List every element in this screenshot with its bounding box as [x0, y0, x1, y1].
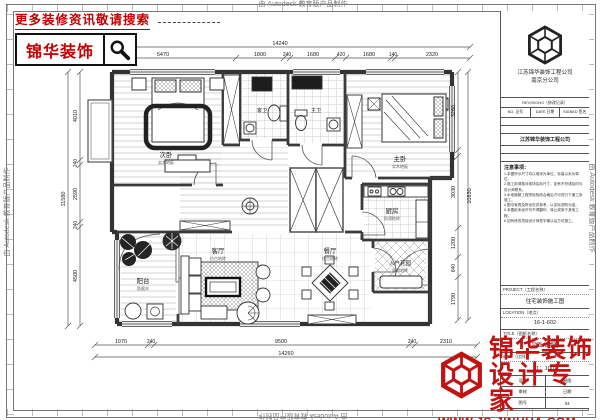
svg-text:240: 240 — [408, 339, 417, 345]
svg-text:防滑地砖: 防滑地砖 — [384, 215, 400, 221]
room-label-entry: 入户花园 — [389, 259, 412, 267]
svg-text:840: 840 — [451, 264, 457, 273]
promo-headline: 更多装修资讯敬请搜索 — [15, 9, 150, 30]
svg-text:240: 240 — [147, 339, 156, 345]
company-branch: 南京分公司 — [517, 78, 572, 85]
company-cube-logo — [525, 23, 565, 67]
autodesk-stamp-right: 由 Autodesk 教育版产品制作 — [587, 128, 597, 288]
brand-line1: 锦华装饰 — [489, 336, 598, 362]
svg-text:9500: 9500 — [275, 339, 287, 345]
brand-line2: 设计专家 — [489, 362, 598, 414]
room-label-kitchen: 厨房 — [386, 206, 399, 215]
svg-text:1680: 1680 — [363, 52, 375, 58]
svg-text:10830: 10830 — [467, 188, 473, 203]
svg-text:防滑地砖: 防滑地砖 — [392, 267, 408, 273]
room-label-bedroom2: 次卧 — [160, 150, 174, 159]
svg-text:4010: 4010 — [73, 110, 79, 122]
svg-text:实木地板: 实木地板 — [158, 159, 174, 165]
revision-title: REVISIONS（修改记录） — [501, 98, 589, 108]
room-label-bath1: 客卫 — [257, 107, 267, 114]
project-field: PROJECT（工程名称） 住宅装饰施工图 — [501, 286, 589, 309]
svg-text:420: 420 — [337, 52, 346, 58]
company-name: 江苏锦华装饰工程公司 — [517, 70, 572, 77]
svg-text:1790: 1790 — [451, 293, 457, 305]
location-field: LOCATION（地点） 16-1-602 — [501, 309, 589, 330]
room-label-balcony: 阳台 — [137, 276, 150, 285]
svg-text:1200: 1200 — [451, 237, 457, 249]
promo-dash-line — [158, 22, 220, 23]
autodesk-stamp-left: 由 Autodesk 教育版产品制作 — [2, 132, 12, 292]
svg-text:14240: 14240 — [272, 41, 287, 47]
company-row: 江苏锦华装饰工程公司 — [501, 134, 589, 146]
svg-text:14260: 14260 — [278, 351, 293, 357]
svg-text:1680: 1680 — [307, 52, 319, 58]
notes-block: 注意事项： 1.本图所示尺寸均以毫米为单位，标高以米为单位。 2.施工前请核对现… — [501, 162, 589, 286]
autodesk-stamp-top: 由 Autodesk 教育版产品制作 — [228, 0, 378, 9]
promo-banner: 更多装修资讯敬请搜索 锦华装饰 — [15, 9, 220, 66]
svg-text:3030: 3030 — [451, 186, 457, 198]
drawing-sheet: 由 Autodesk 教育版产品制作 由 Autodesk 教育版产品制作 由 … — [0, 0, 600, 420]
svg-text:240: 240 — [73, 221, 79, 230]
brand-url: WWW.JS-JINHUA.COM — [438, 415, 598, 420]
svg-text:1800: 1800 — [254, 52, 266, 58]
svg-text:1970: 1970 — [115, 339, 127, 345]
svg-text:仿古地砖: 仿古地砖 — [210, 255, 226, 261]
svg-text:防腐木: 防腐木 — [137, 285, 149, 291]
svg-text:2590: 2590 — [73, 188, 79, 200]
svg-text:240: 240 — [451, 152, 457, 161]
svg-text:11580: 11580 — [61, 192, 67, 207]
shaft-blocks — [290, 168, 343, 232]
brand-overlay: 锦华装饰 设计专家 WWW.JS-JINHUA.COM — [438, 336, 598, 420]
svg-text:3260: 3260 — [451, 105, 457, 117]
room-label-living: 客厅 — [212, 246, 226, 255]
room-label-master: 主卧 — [394, 154, 408, 163]
revision-header: NO. 记号 DATE 日期 SIGNED 签名 — [501, 108, 589, 118]
svg-text:240: 240 — [283, 52, 292, 58]
svg-text:2320: 2320 — [426, 52, 438, 58]
room-label-bath2: 主卫 — [311, 107, 321, 114]
search-icon — [103, 35, 135, 64]
svg-text:140: 140 — [389, 52, 398, 58]
promo-search-box: 锦华装饰 — [15, 33, 137, 66]
svg-text:仿古地砖: 仿古地砖 — [322, 255, 338, 261]
brand-cube-logo — [438, 347, 485, 403]
entry-bench — [380, 276, 422, 288]
room-label-dining: 餐厅 — [324, 246, 338, 255]
autodesk-stamp-bottom: 由 Autodesk 教育版产品制作 — [228, 411, 378, 420]
svg-text:240: 240 — [73, 159, 79, 168]
promo-brand: 锦华装饰 — [17, 35, 103, 64]
svg-text:4500: 4500 — [73, 270, 79, 282]
svg-text:实木地板: 实木地板 — [392, 163, 408, 169]
